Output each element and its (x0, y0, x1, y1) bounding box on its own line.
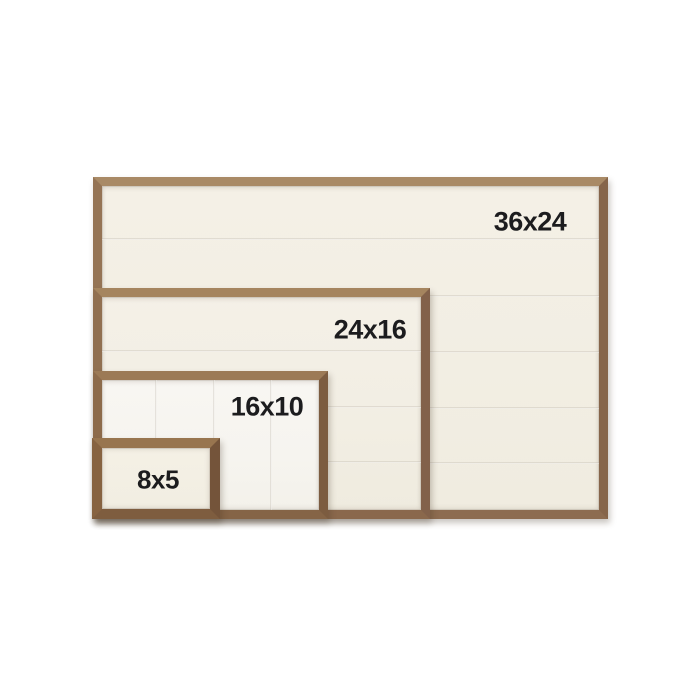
size-label-24x16: 24x16 (334, 315, 407, 346)
plank-seam (102, 238, 599, 240)
product-size-comparison-image: 36x24 24x16 16x10 8x5 (0, 0, 700, 700)
board-8x5: 8x5 (102, 448, 210, 509)
frame-8x5: 8x5 (92, 438, 220, 519)
size-label-8x5: 8x5 (137, 465, 179, 496)
plank-seam (102, 350, 421, 352)
size-label-16x10: 16x10 (231, 392, 304, 423)
size-label-36x24: 36x24 (494, 207, 567, 238)
